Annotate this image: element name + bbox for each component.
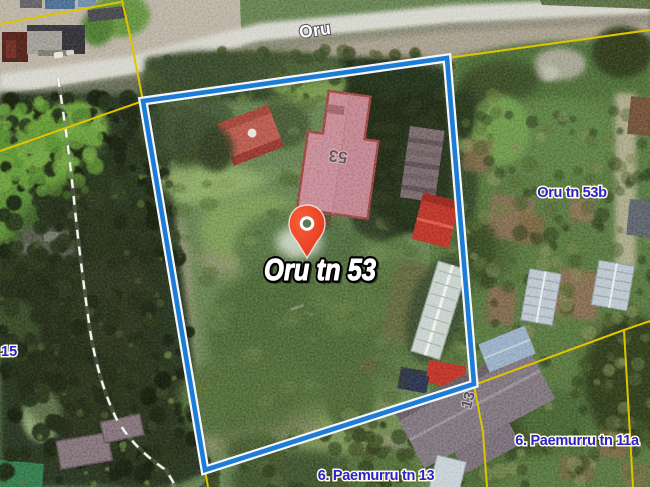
svg-text:6. Paemurru tn 11a: 6. Paemurru tn 11a: [515, 433, 640, 449]
svg-text:53: 53: [327, 146, 348, 167]
svg-text:Oru tn 53: Oru tn 53: [264, 252, 376, 287]
svg-text:Oru tn 53b: Oru tn 53b: [537, 185, 607, 201]
svg-text:15: 15: [1, 344, 17, 360]
svg-text:6. Paemurru tn 13: 6. Paemurru tn 13: [318, 468, 435, 484]
